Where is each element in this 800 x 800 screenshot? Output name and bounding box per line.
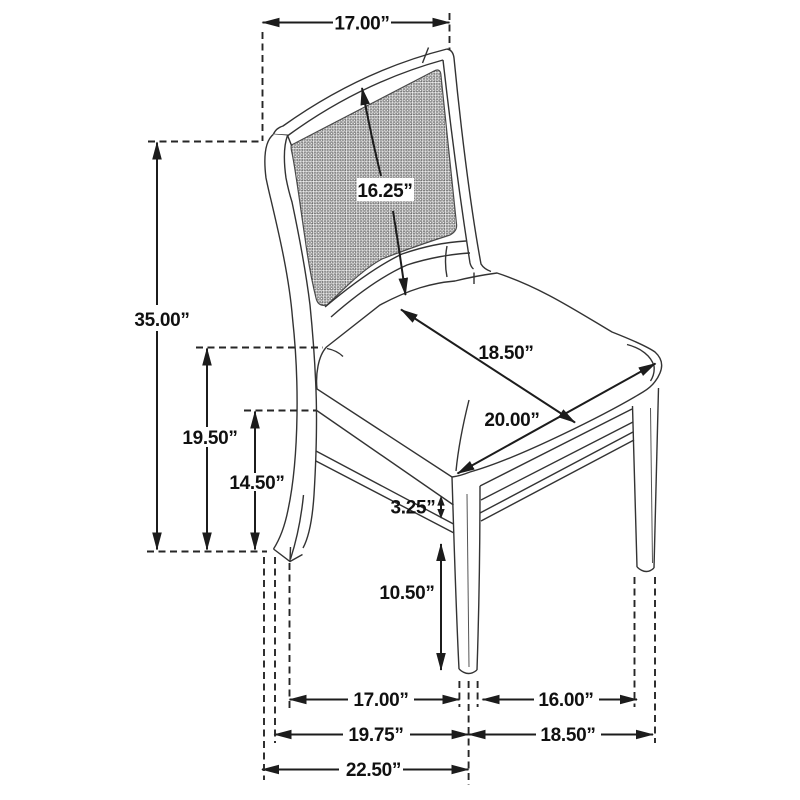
svg-text:19.50”: 19.50” bbox=[182, 428, 237, 449]
svg-text:10.50”: 10.50” bbox=[379, 583, 434, 604]
svg-text:20.00”: 20.00” bbox=[484, 410, 539, 431]
svg-text:14.50”: 14.50” bbox=[229, 473, 284, 494]
svg-text:35.00”: 35.00” bbox=[134, 310, 189, 331]
svg-text:17.00”: 17.00” bbox=[353, 690, 408, 711]
svg-text:17.00”: 17.00” bbox=[334, 14, 389, 35]
svg-text:18.50”: 18.50” bbox=[540, 725, 595, 746]
svg-text:3.25”: 3.25” bbox=[391, 498, 436, 519]
svg-text:16.00”: 16.00” bbox=[538, 690, 593, 711]
svg-text:18.50”: 18.50” bbox=[478, 343, 533, 364]
svg-text:22.50”: 22.50” bbox=[346, 760, 401, 781]
svg-text:16.25”: 16.25” bbox=[357, 181, 412, 202]
svg-text:19.75”: 19.75” bbox=[348, 725, 403, 746]
